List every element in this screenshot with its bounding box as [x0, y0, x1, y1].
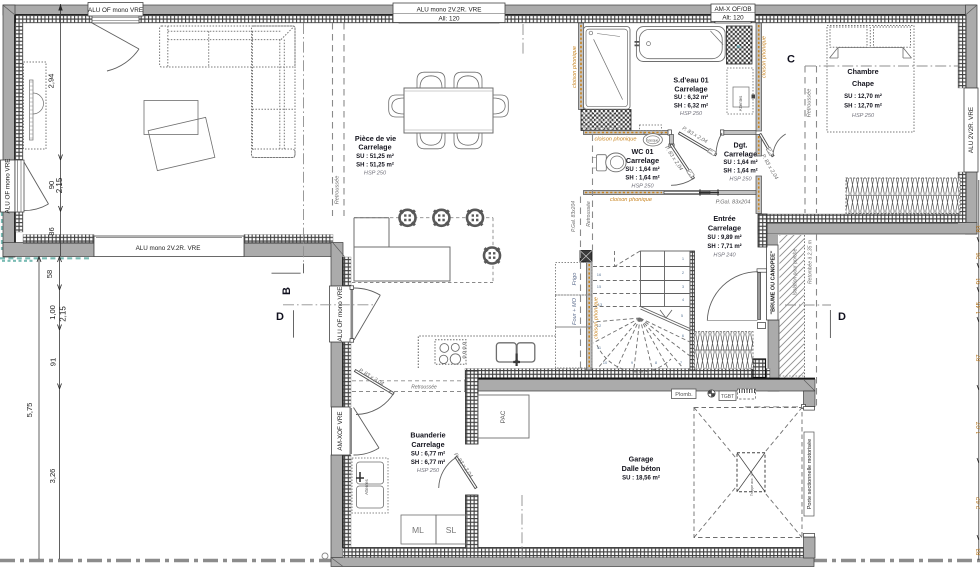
svg-text:ALU mono 2V.2R. VRE: ALU mono 2V.2R. VRE	[136, 245, 201, 252]
svg-text:Carrelage: Carrelage	[626, 156, 659, 165]
svg-text:83: 83	[976, 548, 980, 556]
svg-text:Vasque: Vasque	[647, 139, 658, 143]
svg-text:Carrelage: Carrelage	[674, 84, 707, 93]
svg-text:Attentes: Attentes	[364, 479, 369, 494]
svg-text:3,26: 3,26	[48, 469, 57, 484]
svg-text:P.Gal. 83x204: P.Gal. 83x204	[716, 200, 751, 206]
svg-text:ALU 2V2R. VRE: ALU 2V2R. VRE	[968, 107, 975, 153]
svg-text:ALU OF mono VRE: ALU OF mono VRE	[5, 159, 12, 214]
svg-text:HSP 240: HSP 240	[713, 252, 736, 258]
svg-text:SH : 6,77 m²: SH : 6,77 m²	[411, 459, 445, 466]
svg-text:2,15: 2,15	[59, 306, 68, 322]
svg-text:86: 86	[47, 227, 56, 235]
svg-text:cloison phonique: cloison phonique	[595, 137, 637, 143]
svg-text:D: D	[276, 311, 284, 323]
svg-text:16: 16	[597, 272, 602, 277]
svg-text:SH : 7,71 m²: SH : 7,71 m²	[707, 243, 741, 250]
svg-text:cloison phonique: cloison phonique	[572, 46, 578, 88]
svg-text:B: B	[281, 287, 293, 295]
svg-text:SU : 6,77 m²: SU : 6,77 m²	[411, 450, 445, 457]
svg-text:Plomb.: Plomb.	[675, 392, 693, 398]
svg-text:Attentes: Attentes	[738, 96, 743, 111]
svg-text:1,07: 1,07	[976, 421, 980, 434]
svg-text:SU : 1,64 m²: SU : 1,64 m²	[723, 159, 757, 166]
svg-text:SU : 51,25 m²: SU : 51,25 m²	[356, 153, 394, 160]
svg-text:HSP 250: HSP 250	[417, 468, 440, 474]
svg-text:"BRUME OU CANOPEE": "BRUME OU CANOPEE"	[770, 250, 776, 314]
svg-text:WC 01: WC 01	[632, 147, 654, 156]
svg-text:AM-X OF/OB: AM-X OF/OB	[714, 6, 751, 13]
svg-text:2,94: 2,94	[47, 74, 56, 89]
svg-text:Dgt.: Dgt.	[734, 141, 748, 150]
svg-text:Retroussée: Retroussée	[335, 176, 341, 205]
svg-text:26: 26	[976, 252, 980, 260]
svg-text:SU : 1,64 m²: SU : 1,64 m²	[625, 166, 659, 173]
svg-text:Isolation pour porche: Isolation pour porche	[793, 248, 799, 295]
svg-text:AM-XOF VRE: AM-XOF VRE	[337, 411, 344, 450]
svg-text:PAC: PAC	[500, 410, 507, 423]
svg-text:Frigo: Frigo	[572, 273, 578, 286]
svg-text:Trappe acc. V+: Trappe acc. V+	[750, 472, 754, 496]
svg-text:HSP 250: HSP 250	[729, 176, 752, 182]
svg-text:Alt: 120: Alt: 120	[722, 15, 744, 22]
svg-text:15: 15	[597, 284, 602, 289]
svg-text:Retroussée: Retroussée	[411, 385, 437, 391]
svg-text:Carrelage: Carrelage	[708, 224, 741, 233]
svg-text:ALU OF mono VRE: ALU OF mono VRE	[88, 7, 143, 14]
svg-text:87: 87	[976, 354, 980, 362]
svg-text:83: 83	[976, 225, 980, 233]
svg-text:SH : 12,70 m²: SH : 12,70 m²	[844, 103, 882, 110]
svg-text:Retroussée: Retroussée	[586, 201, 592, 227]
svg-text:SU : 12,70 m²: SU : 12,70 m²	[844, 93, 882, 100]
svg-text:1,00: 1,00	[48, 305, 57, 320]
svg-text:SU : 6,32 m²: SU : 6,32 m²	[674, 94, 708, 101]
svg-text:Buanderie: Buanderie	[410, 431, 445, 440]
svg-text:SU : 9,89 m²: SU : 9,89 m²	[707, 234, 741, 241]
svg-text:Chambre: Chambre	[847, 67, 878, 76]
svg-text:12: 12	[597, 323, 602, 328]
svg-text:HSP 250: HSP 250	[852, 113, 875, 119]
svg-text:2,62: 2,62	[976, 496, 980, 509]
svg-text:ALU OF mono VRE: ALU OF mono VRE	[337, 287, 344, 342]
svg-text:cloison phonique: cloison phonique	[762, 36, 768, 78]
svg-text:SL: SL	[736, 44, 742, 49]
svg-text:D: D	[838, 311, 846, 323]
svg-text:Garage: Garage	[629, 455, 654, 464]
svg-text:10: 10	[603, 360, 608, 365]
svg-text:Entrée: Entrée	[713, 214, 735, 223]
svg-text:2,15: 2,15	[55, 177, 64, 193]
svg-text:P.Gal. 83x204: P.Gal. 83x204	[571, 201, 577, 232]
svg-text:ALU mono 2V.2R. VRE: ALU mono 2V.2R. VRE	[417, 7, 482, 14]
svg-text:S.d'eau 01: S.d'eau 01	[673, 76, 708, 85]
svg-text:cloison phonique: cloison phonique	[610, 197, 652, 203]
svg-text:91: 91	[976, 277, 980, 285]
svg-text:Dalle béton: Dalle béton	[622, 464, 661, 473]
svg-text:Carrelage: Carrelage	[724, 149, 757, 158]
svg-text:HSP 250: HSP 250	[364, 171, 387, 177]
svg-text:SH : 1,64 m²: SH : 1,64 m²	[625, 175, 659, 182]
svg-text:HSP 250: HSP 250	[631, 184, 654, 190]
svg-text:SH : 6,32 m²: SH : 6,32 m²	[674, 102, 708, 109]
svg-text:All: 120: All: 120	[438, 16, 460, 23]
svg-text:SU : 18,56 m²: SU : 18,56 m²	[622, 475, 660, 482]
svg-text:13: 13	[598, 302, 603, 307]
svg-text:Retombée à 2,35 m: Retombée à 2,35 m	[808, 240, 814, 284]
svg-text:SH : 51,25 m²: SH : 51,25 m²	[356, 161, 394, 168]
svg-text:SH : 1,64 m²: SH : 1,64 m²	[723, 168, 757, 175]
svg-text:TGBT: TGBT	[721, 394, 734, 400]
svg-text:Porte sectionnelle motorisée: Porte sectionnelle motorisée	[807, 439, 813, 510]
svg-text:Retroussée: Retroussée	[807, 89, 813, 118]
svg-text:Carrelage: Carrelage	[358, 143, 391, 152]
svg-text:ML: ML	[412, 525, 424, 535]
svg-text:C: C	[787, 54, 795, 66]
svg-text:Four + MO: Four + MO	[572, 297, 578, 325]
svg-text:58: 58	[45, 270, 54, 278]
svg-text:SL: SL	[446, 525, 457, 535]
svg-text:1,45: 1,45	[976, 301, 980, 314]
svg-text:5,75: 5,75	[25, 403, 34, 418]
svg-text:91: 91	[49, 358, 58, 366]
svg-text:HSP 250: HSP 250	[680, 111, 703, 117]
svg-text:Carrelage: Carrelage	[411, 440, 444, 449]
svg-text:Chape: Chape	[852, 79, 874, 88]
